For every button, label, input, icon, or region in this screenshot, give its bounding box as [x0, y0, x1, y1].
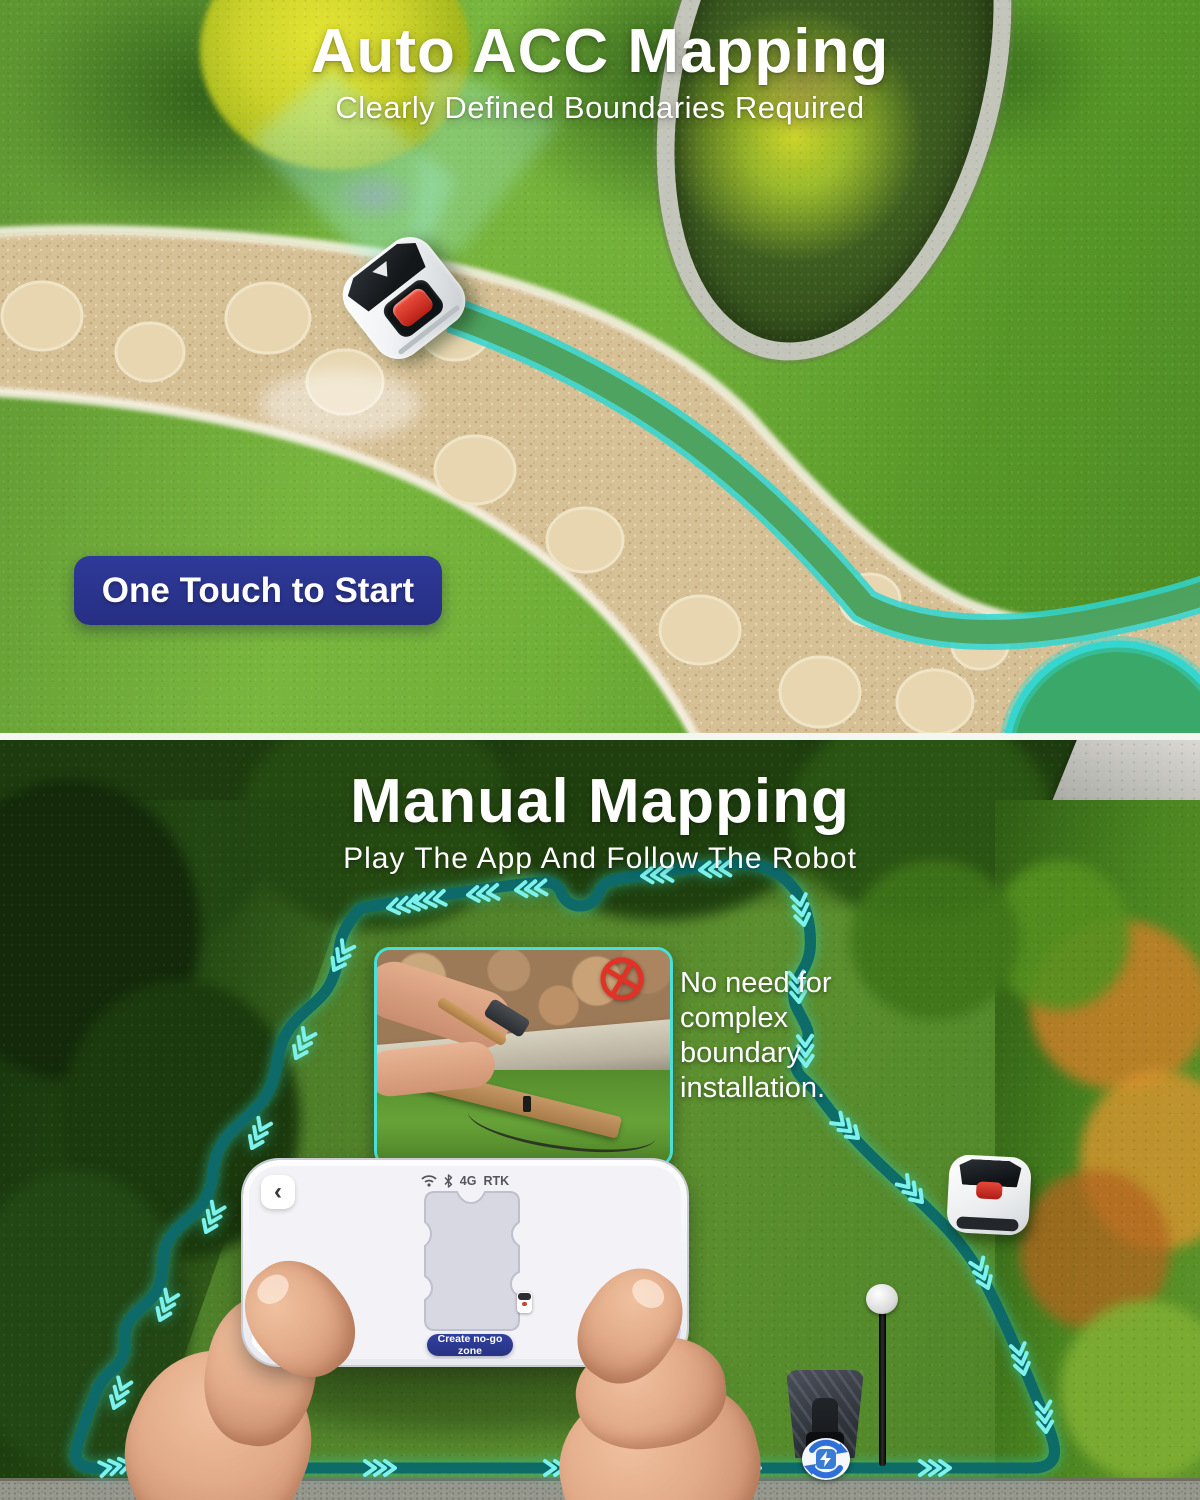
robot-stop-button — [976, 1181, 1003, 1199]
robot-marker-icon — [517, 1292, 532, 1313]
callout-line: complex — [680, 1001, 930, 1036]
rtk-antenna-ball — [866, 1284, 898, 1314]
callout-line: installation. — [680, 1071, 930, 1106]
callout-line: No need for — [680, 966, 930, 1001]
manual-section-subtitle: Play The App And Follow The Robot — [0, 842, 1200, 876]
auto-section-subtitle: Clearly Defined Boundaries Required — [0, 90, 1200, 126]
lawn-map-shape — [405, 1188, 537, 1338]
thumb-nail — [627, 1273, 670, 1314]
charge-sync-icon — [800, 1436, 852, 1482]
boundary-peg — [523, 1096, 531, 1112]
no-boundary-callout: No need for complex boundary installatio… — [680, 966, 930, 1106]
callout-line: boundary — [680, 1036, 930, 1071]
auto-section-title: Auto ACC Mapping — [0, 16, 1200, 87]
network-label: 4G — [460, 1174, 477, 1188]
section-divider — [0, 733, 1200, 740]
gravel-path — [0, 232, 1200, 737]
auto-mapping-scene: Auto ACC Mapping Clearly Defined Boundar… — [0, 0, 1200, 737]
manual-section-title: Manual Mapping — [0, 766, 1200, 837]
product-infographic: Auto ACC Mapping Clearly Defined Boundar… — [0, 0, 1200, 1500]
thumb-nail — [252, 1269, 295, 1310]
wifi-icon — [421, 1175, 437, 1187]
robot-mower-following — [946, 1154, 1032, 1236]
bluetooth-icon — [444, 1174, 453, 1188]
rtk-label: RTK — [483, 1174, 509, 1188]
create-no-go-zone-button[interactable]: Create no-go zone — [427, 1334, 513, 1356]
rtk-antenna-pole — [879, 1306, 886, 1466]
phone-status-bar: 4G RTK — [249, 1173, 681, 1189]
one-touch-start-button[interactable]: One Touch to Start — [74, 556, 442, 625]
